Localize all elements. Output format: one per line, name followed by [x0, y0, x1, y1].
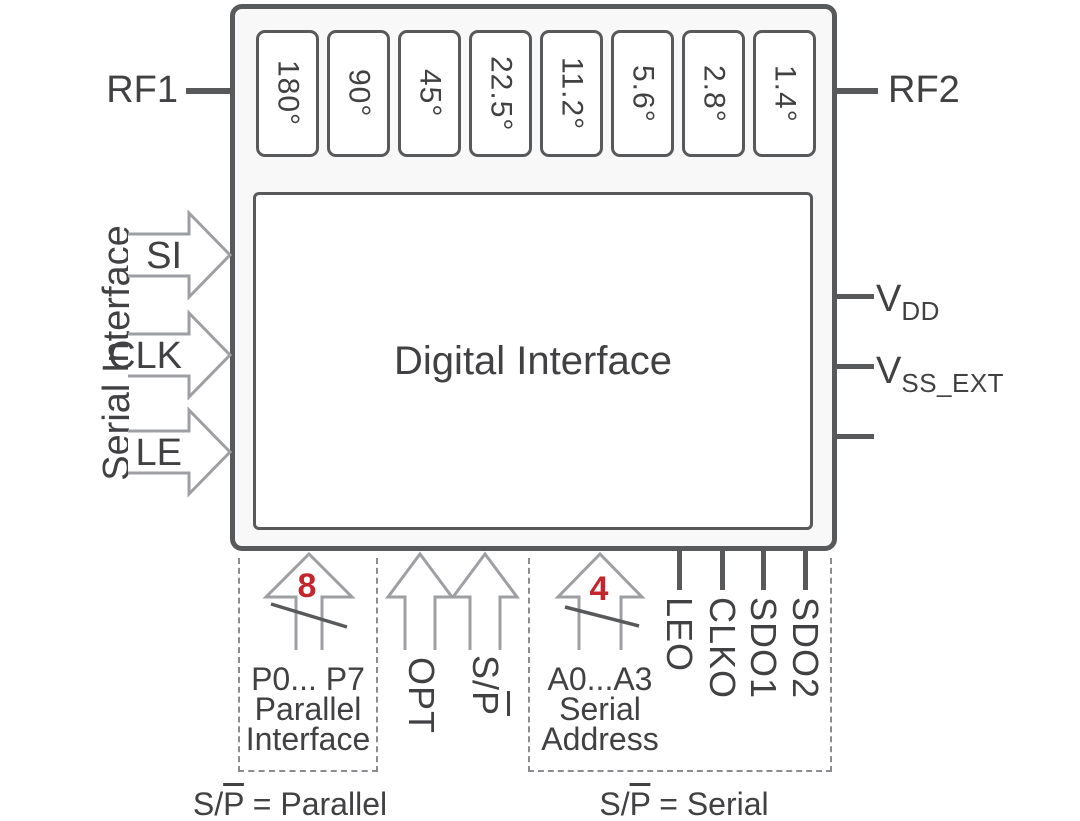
parallel-interface-caption: P0... P7 Parallel Interface: [237, 664, 379, 754]
phase-bit-label: 45°: [413, 69, 447, 117]
vdd-subscript: DD: [901, 296, 940, 326]
vss-base: V: [876, 350, 901, 392]
sdo1-pin-line: [761, 550, 766, 590]
vdd-pin-line: [836, 294, 874, 299]
phase-bit-box-11-2: 11.2°: [540, 30, 603, 157]
phase-bit-label: 1.4°: [768, 65, 802, 123]
le-label: LE: [92, 433, 182, 473]
vdd-base: V: [876, 278, 901, 320]
serial-address-caption: A0...A3 Serial Address: [529, 664, 671, 754]
phase-bit-box-2-8: 2.8°: [682, 30, 745, 157]
a0-a3-label: A0...A3: [529, 664, 671, 694]
si-label: SI: [92, 236, 182, 276]
sdo2-pin-line: [803, 550, 808, 590]
sp-input-arrow-icon: [452, 552, 518, 650]
clk-label: CLK: [92, 336, 182, 376]
opt-input-arrow-icon: [387, 552, 453, 650]
vss-subscript: SS_EXT: [901, 368, 1004, 398]
note-overline-p: P: [630, 786, 651, 821]
phase-bit-box-180: 180°: [256, 30, 319, 157]
digital-interface-box: Digital Interface: [253, 192, 813, 530]
serial-caption-line2: Address: [529, 724, 671, 754]
rf1-label: RF1: [86, 70, 178, 110]
sp-label: S/P: [468, 655, 502, 716]
rf2-line: [835, 88, 878, 94]
vdd-label: VDD: [876, 279, 940, 322]
parallel-mode-note: S/P = Parallel: [180, 786, 400, 821]
phase-bit-box-1-4: 1.4°: [753, 30, 816, 157]
note-overline-p: P: [223, 786, 244, 821]
sdo1-label: SDO1: [746, 597, 780, 699]
phase-bit-box-5-6: 5.6°: [611, 30, 674, 157]
leo-label: LEO: [662, 597, 696, 672]
leo-pin-line: [677, 550, 682, 590]
phase-bit-label: 22.5°: [484, 56, 518, 131]
vss-ext-pin-line: [836, 364, 874, 369]
rf1-line: [186, 88, 232, 94]
parallel-caption-line1: Parallel: [237, 694, 379, 724]
unlabeled-pin-line: [836, 434, 874, 439]
parallel-caption-line2: Interface: [237, 724, 379, 754]
clko-label: CLKO: [705, 597, 739, 699]
vss-ext-label: VSS_EXT: [876, 351, 1004, 394]
phase-bit-box-90: 90°: [327, 30, 390, 157]
phase-bit-label: 2.8°: [697, 65, 731, 123]
rf2-label: RF2: [888, 70, 960, 110]
phase-shifter-block-diagram: 180° 90° 45° 22.5° 11.2° 5.6° 2.8° 1.4° …: [0, 0, 1080, 821]
phase-bit-label: 90°: [342, 69, 376, 117]
phase-bit-label: 5.6°: [626, 65, 660, 123]
sdo2-label: SDO2: [788, 597, 822, 699]
phase-bit-label: 11.2°: [555, 57, 589, 130]
p0-p7-label: P0... P7: [237, 664, 379, 694]
sp-prefix: S/: [465, 655, 506, 691]
serial-mode-note: S/P = Serial: [574, 786, 794, 821]
clko-pin-line: [720, 550, 725, 590]
phase-bit-box-22-5: 22.5°: [469, 30, 532, 157]
serial-caption-line1: Serial: [529, 694, 671, 724]
phase-bit-box-45: 45°: [398, 30, 461, 157]
sp-overline-p: P: [465, 691, 506, 716]
bus-width-8-label: 8: [291, 567, 323, 606]
opt-label: OPT: [404, 657, 438, 734]
digital-interface-label: Digital Interface: [394, 339, 672, 384]
phase-bit-label: 180°: [271, 60, 305, 126]
bus-width-4-label: 4: [583, 570, 615, 609]
